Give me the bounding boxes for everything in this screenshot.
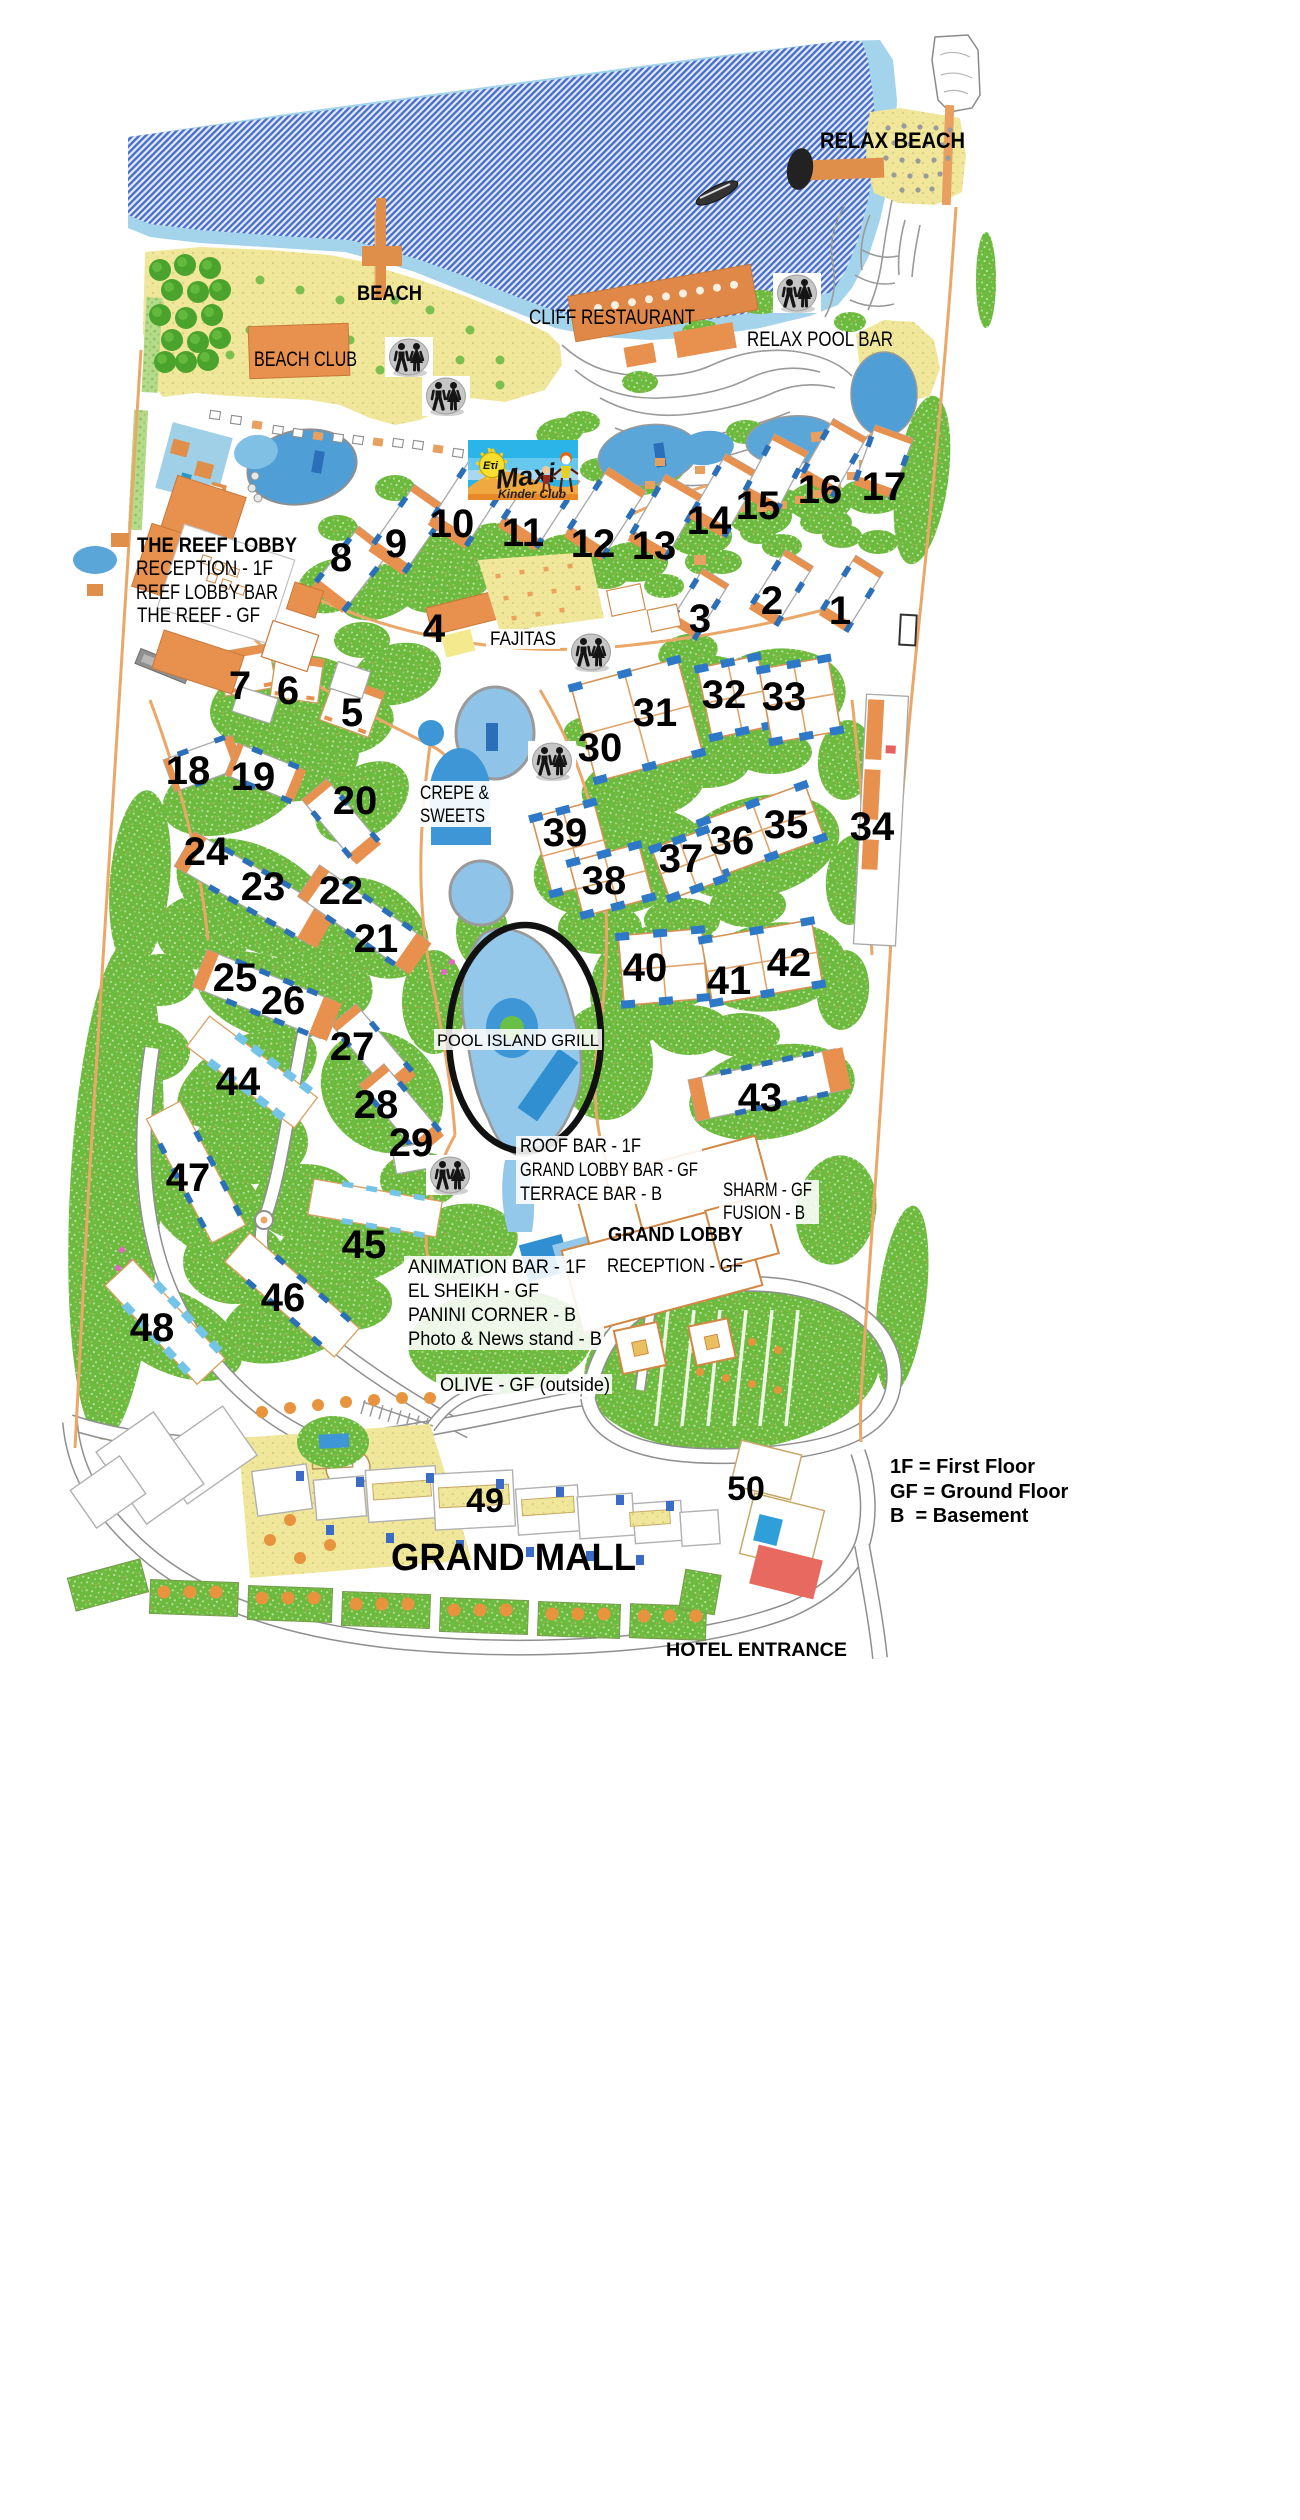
svg-text:25: 25 — [213, 956, 258, 1000]
svg-text:44: 44 — [216, 1060, 261, 1104]
svg-text:33: 33 — [762, 675, 807, 719]
svg-text:BEACH: BEACH — [357, 282, 422, 305]
svg-text:19: 19 — [231, 755, 276, 799]
svg-text:16: 16 — [798, 468, 843, 512]
svg-text:4: 4 — [423, 607, 446, 651]
svg-text:26: 26 — [261, 979, 306, 1023]
svg-text:36: 36 — [710, 819, 755, 863]
svg-text:CLIFF RESTAURANT: CLIFF RESTAURANT — [529, 306, 695, 329]
svg-text:10: 10 — [430, 502, 475, 546]
svg-text:SWEETS: SWEETS — [420, 806, 485, 827]
svg-text:RELAX POOL BAR: RELAX POOL BAR — [747, 328, 893, 351]
svg-text:18: 18 — [166, 749, 211, 793]
svg-text:RECEPTION - GF: RECEPTION - GF — [607, 1256, 743, 1277]
svg-text:EL SHEIKH - GF: EL SHEIKH - GF — [408, 1281, 539, 1302]
svg-text:PANINI CORNER - B: PANINI CORNER - B — [408, 1305, 576, 1326]
svg-text:6: 6 — [277, 669, 299, 713]
svg-text:24: 24 — [184, 830, 229, 874]
svg-text:Photo & News stand - B: Photo & News stand - B — [408, 1329, 602, 1350]
svg-text:TERRACE BAR - B: TERRACE BAR - B — [520, 1184, 662, 1205]
svg-text:CREPE &: CREPE & — [420, 783, 489, 804]
svg-text:BEACH CLUB: BEACH CLUB — [254, 348, 357, 371]
svg-text:32: 32 — [702, 673, 747, 717]
svg-text:27: 27 — [330, 1025, 375, 1069]
svg-text:31: 31 — [633, 691, 678, 735]
svg-text:POOL ISLAND GRILL: POOL ISLAND GRILL — [437, 1031, 599, 1050]
svg-text:FUSION - B: FUSION - B — [723, 1203, 805, 1224]
svg-text:12: 12 — [571, 522, 616, 566]
svg-text:3: 3 — [689, 597, 711, 641]
svg-text:39: 39 — [543, 811, 588, 855]
svg-text:1F = First Floor: 1F = First Floor — [890, 1456, 1035, 1478]
svg-text:FAJITAS: FAJITAS — [490, 629, 556, 650]
svg-text:GRAND LOBBY BAR - GF: GRAND LOBBY BAR - GF — [520, 1160, 698, 1181]
svg-text:RELAX BEACH: RELAX BEACH — [820, 128, 965, 153]
svg-text:38: 38 — [582, 859, 627, 903]
svg-text:30: 30 — [578, 726, 623, 770]
svg-text:21: 21 — [354, 917, 399, 961]
svg-text:22: 22 — [319, 869, 364, 913]
svg-text:HOTEL ENTRANCE: HOTEL ENTRANCE — [666, 1640, 847, 1661]
svg-text:20: 20 — [333, 779, 378, 823]
svg-text:THE REEF LOBBY: THE REEF LOBBY — [137, 534, 297, 557]
svg-text:11: 11 — [502, 511, 544, 555]
svg-text:5: 5 — [341, 691, 363, 735]
svg-text:RECEPTION - 1F: RECEPTION - 1F — [136, 557, 273, 580]
svg-text:40: 40 — [623, 946, 668, 990]
svg-text:OLIVE - GF (outside): OLIVE - GF (outside) — [440, 1375, 610, 1396]
svg-text:GRAND MALL: GRAND MALL — [391, 1537, 636, 1579]
svg-text:48: 48 — [130, 1306, 175, 1350]
svg-text:43: 43 — [738, 1076, 783, 1120]
svg-text:8: 8 — [330, 536, 352, 580]
svg-text:23: 23 — [241, 865, 286, 909]
svg-text:47: 47 — [166, 1156, 211, 1200]
svg-text:42: 42 — [767, 941, 812, 985]
svg-text:7: 7 — [229, 664, 251, 708]
svg-text:49: 49 — [466, 1482, 504, 1520]
svg-text:Kinder Club: Kinder Club — [498, 487, 566, 501]
svg-text:50: 50 — [727, 1470, 765, 1508]
svg-text:1: 1 — [829, 589, 851, 633]
svg-text:35: 35 — [764, 803, 809, 847]
svg-text:THE REEF - GF: THE REEF - GF — [137, 604, 260, 627]
svg-text:37: 37 — [659, 837, 704, 881]
svg-text:29: 29 — [389, 1121, 434, 1165]
svg-text:REEF LOBBY BAR: REEF LOBBY BAR — [136, 581, 278, 604]
svg-text:ANIMATION BAR - 1F: ANIMATION BAR - 1F — [408, 1257, 586, 1278]
svg-text:17: 17 — [862, 465, 907, 509]
svg-text:ROOF BAR - 1F: ROOF BAR - 1F — [520, 1136, 641, 1157]
svg-text:34: 34 — [850, 805, 895, 849]
svg-text:2: 2 — [761, 579, 783, 623]
svg-text:15: 15 — [736, 484, 781, 528]
svg-text:GF = Ground Floor: GF = Ground Floor — [890, 1481, 1069, 1503]
svg-text:9: 9 — [385, 522, 407, 566]
svg-text:45: 45 — [342, 1223, 387, 1267]
svg-text:GRAND LOBBY: GRAND LOBBY — [608, 1224, 744, 1246]
svg-text:41: 41 — [707, 959, 752, 1003]
svg-text:SHARM - GF: SHARM - GF — [723, 1180, 812, 1201]
svg-text:B = Basement: B = Basement — [890, 1505, 1029, 1527]
svg-text:46: 46 — [261, 1276, 306, 1320]
svg-text:13: 13 — [632, 524, 677, 568]
svg-text:14: 14 — [687, 499, 732, 543]
